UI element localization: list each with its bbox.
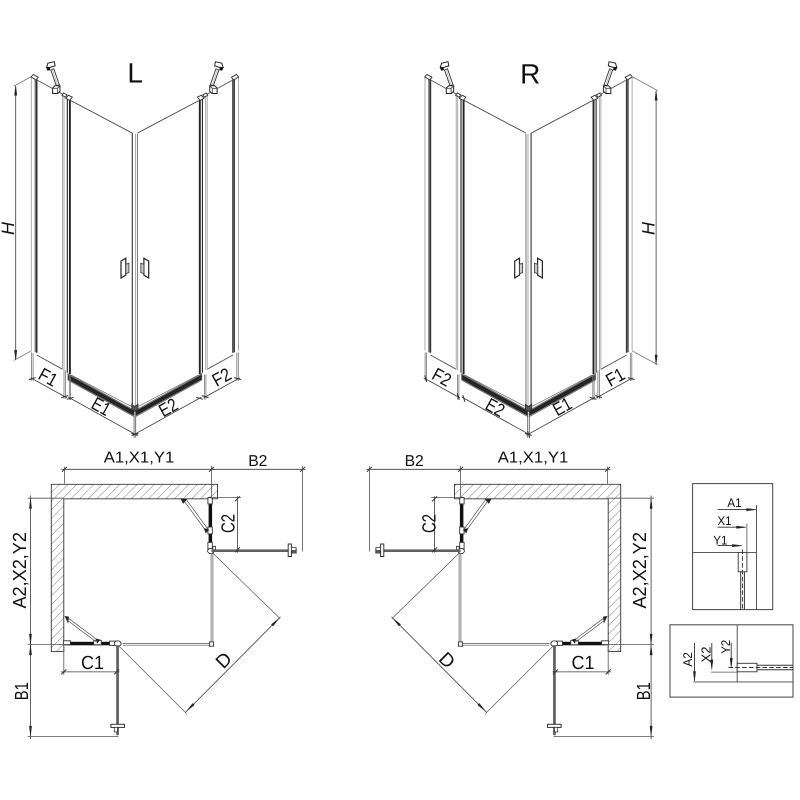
- svg-text:A2,X2,Y2: A2,X2,Y2: [10, 532, 31, 609]
- svg-text:D: D: [434, 649, 459, 674]
- svg-text:H: H: [638, 221, 658, 235]
- svg-text:C1: C1: [81, 653, 104, 674]
- svg-text:B1: B1: [12, 682, 33, 700]
- svg-text:E1: E1: [549, 393, 575, 420]
- svg-text:L: L: [127, 57, 143, 88]
- svg-text:D: D: [212, 649, 237, 674]
- svg-text:R: R: [520, 58, 540, 89]
- svg-text:F1: F1: [35, 363, 61, 390]
- svg-text:B1: B1: [634, 682, 655, 700]
- svg-text:A2: A2: [681, 652, 695, 667]
- svg-text:B2: B2: [405, 453, 424, 470]
- svg-text:X2: X2: [699, 647, 714, 663]
- svg-text:X1: X1: [717, 514, 731, 528]
- svg-text:C2: C2: [219, 514, 240, 533]
- svg-text:F2: F2: [208, 363, 234, 390]
- svg-text:Y2: Y2: [719, 640, 733, 654]
- svg-text:F2: F2: [429, 363, 455, 390]
- svg-text:C2: C2: [419, 514, 440, 533]
- svg-text:A1,X1,Y1: A1,X1,Y1: [104, 449, 175, 466]
- svg-text:E1: E1: [88, 393, 114, 420]
- svg-text:H: H: [0, 221, 18, 235]
- svg-text:B2: B2: [248, 453, 267, 470]
- svg-text:C1: C1: [572, 653, 595, 674]
- svg-text:A2,X2,Y2: A2,X2,Y2: [630, 532, 651, 609]
- svg-text:Y1: Y1: [713, 533, 727, 547]
- svg-text:A1: A1: [727, 496, 741, 510]
- svg-text:A1,X1,Y1: A1,X1,Y1: [498, 449, 569, 466]
- svg-text:F1: F1: [602, 363, 628, 390]
